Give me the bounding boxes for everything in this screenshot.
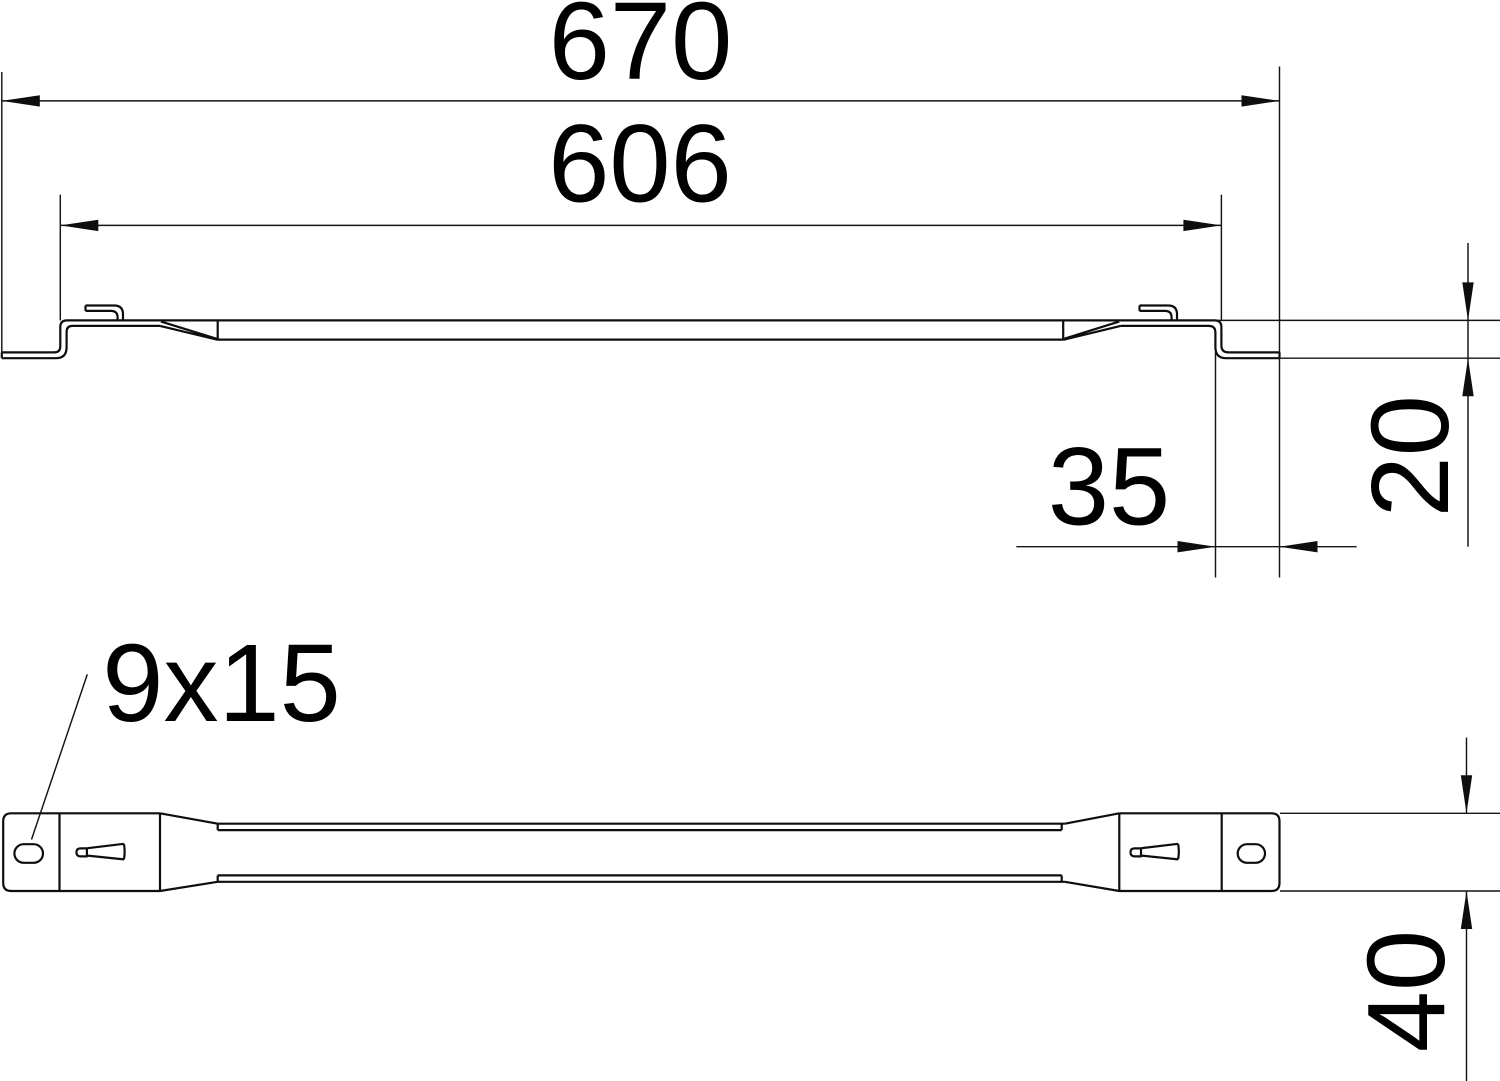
svg-text:670: 670 xyxy=(549,0,733,103)
svg-text:9x15: 9x15 xyxy=(102,622,341,745)
svg-text:35: 35 xyxy=(1048,426,1170,549)
svg-text:40: 40 xyxy=(1345,930,1468,1052)
svg-text:20: 20 xyxy=(1349,395,1472,517)
svg-text:606: 606 xyxy=(548,103,732,226)
